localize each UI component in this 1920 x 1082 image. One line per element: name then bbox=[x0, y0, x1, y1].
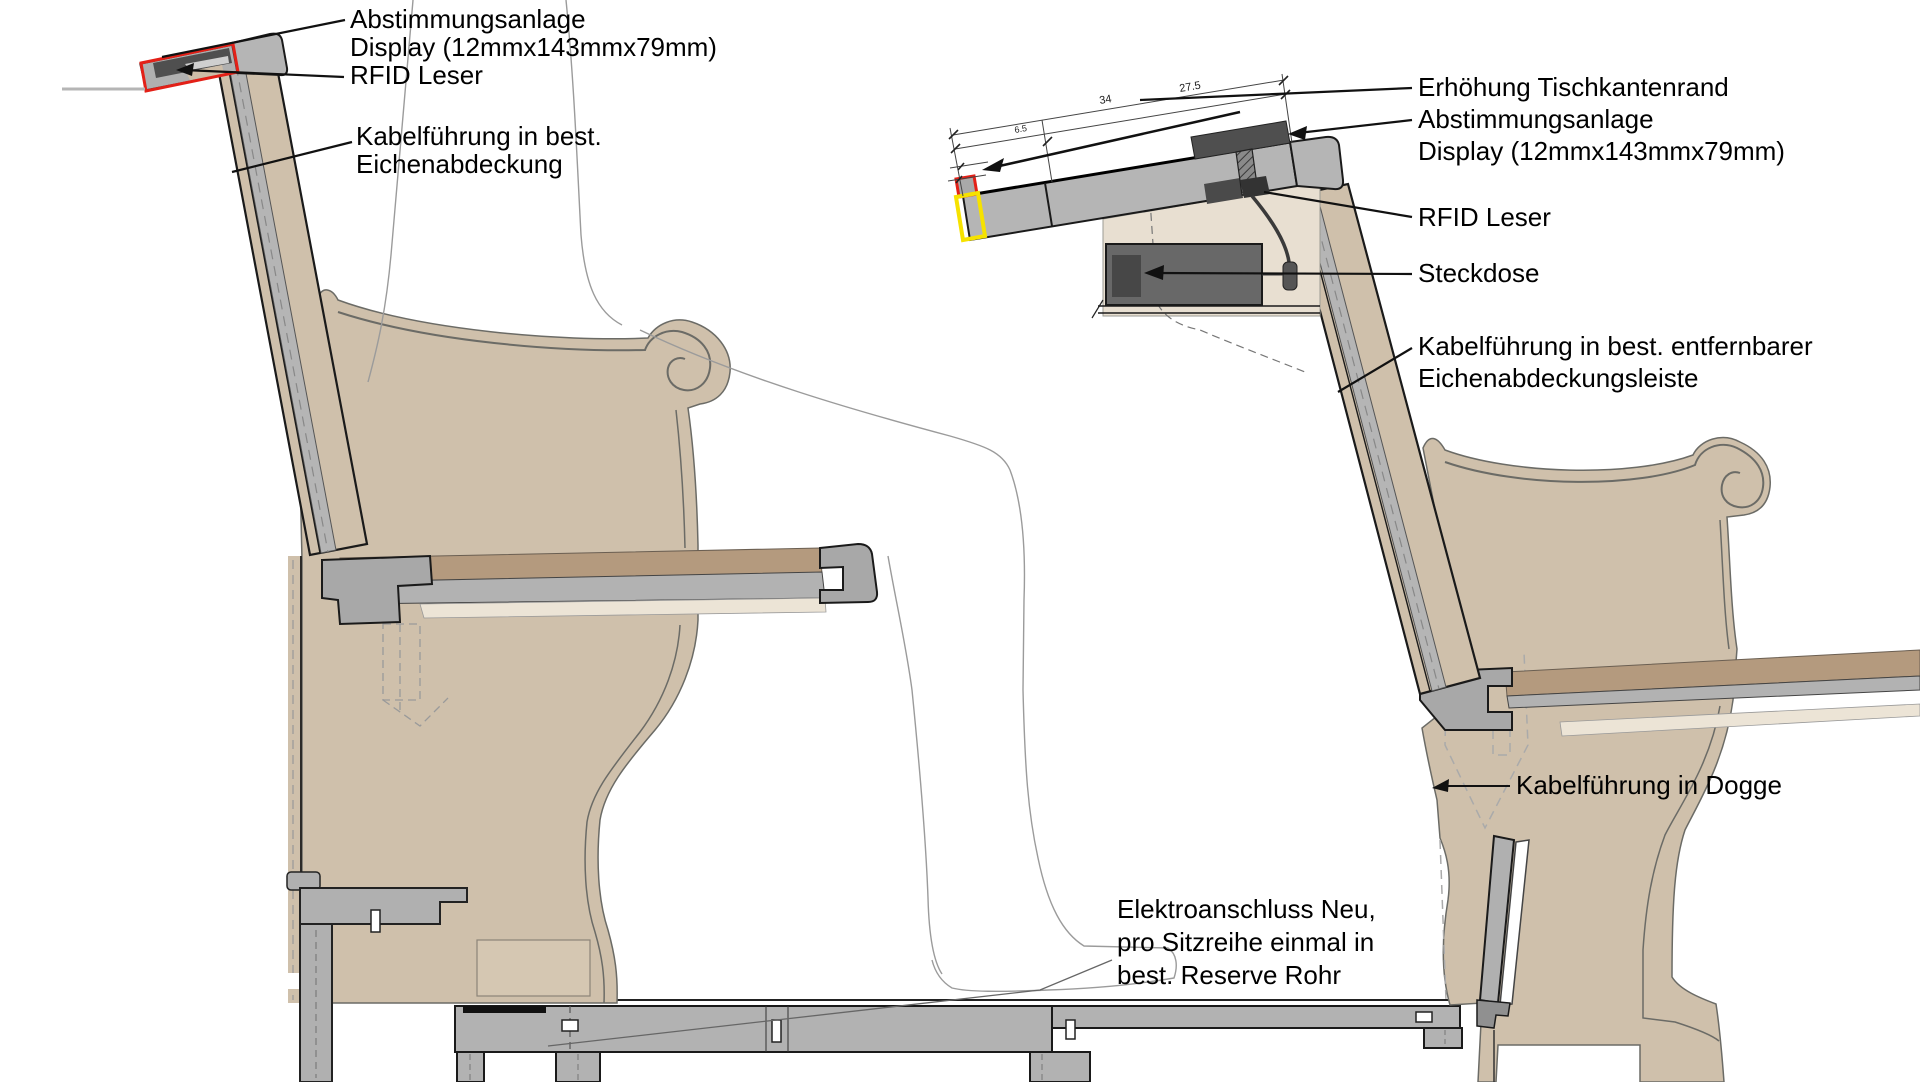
floor-structure bbox=[447, 1000, 1465, 1082]
cable-connector bbox=[1283, 262, 1297, 290]
label-right-steckdose: Steckdose bbox=[1418, 258, 1539, 288]
label-dogge: Kabelführung in Dogge bbox=[1516, 770, 1782, 800]
label-elektro-2: pro Sitzreihe einmal in bbox=[1117, 927, 1374, 957]
floor-post bbox=[1030, 1052, 1090, 1082]
steckdose-inner bbox=[1112, 255, 1141, 297]
dim-value-65: 6.5 bbox=[1014, 123, 1028, 135]
left-seat-end-cap bbox=[820, 544, 877, 603]
label-elektro-3: best. Reserve Rohr bbox=[1117, 960, 1341, 990]
right-side-panel bbox=[1422, 438, 1770, 1082]
label-left-rfid: RFID Leser bbox=[350, 60, 483, 90]
label-left-kabel-1: Kabelführung in best. bbox=[356, 121, 602, 151]
elektro-reserve-rohr-bar bbox=[463, 1006, 546, 1013]
label-right-kabel-2: Eichenabdeckungsleiste bbox=[1418, 363, 1698, 393]
label-right-erhoehung: Erhöhung Tischkantenrand bbox=[1418, 72, 1729, 102]
dim-value-275: 27.5 bbox=[1179, 80, 1202, 95]
label-left-abstimmungsanlage: Abstimmungsanlage bbox=[350, 4, 586, 34]
dim-value-34: 34 bbox=[1099, 93, 1113, 107]
label-elektro-1: Elektroanschluss Neu, bbox=[1117, 894, 1376, 924]
label-left-kabel-2: Eichenabdeckung bbox=[356, 149, 563, 179]
right-desk-cap bbox=[1290, 137, 1343, 189]
label-right-display: Display (12mmx143mmx79mm) bbox=[1418, 136, 1785, 166]
label-right-abstimmungsanlage: Abstimmungsanlage bbox=[1418, 104, 1654, 134]
technical-drawing-canvas: Abstimmungsanlage Display (12mmx143mmx79… bbox=[0, 0, 1920, 1082]
left-desk-cap bbox=[232, 34, 287, 76]
label-right-kabel-1: Kabelführung in best. entfernbarer bbox=[1418, 331, 1813, 361]
left-seat-section bbox=[62, 34, 877, 1082]
floor-beam-walkway bbox=[1052, 1006, 1460, 1028]
label-right-rfid: RFID Leser bbox=[1418, 202, 1551, 232]
label-left-display: Display (12mmx143mmx79mm) bbox=[350, 32, 717, 62]
section-drawing-svg: Abstimmungsanlage Display (12mmx143mmx79… bbox=[0, 0, 1920, 1082]
floor-beam-end-block bbox=[1424, 1028, 1462, 1048]
reserve-rohr-block bbox=[477, 940, 590, 996]
